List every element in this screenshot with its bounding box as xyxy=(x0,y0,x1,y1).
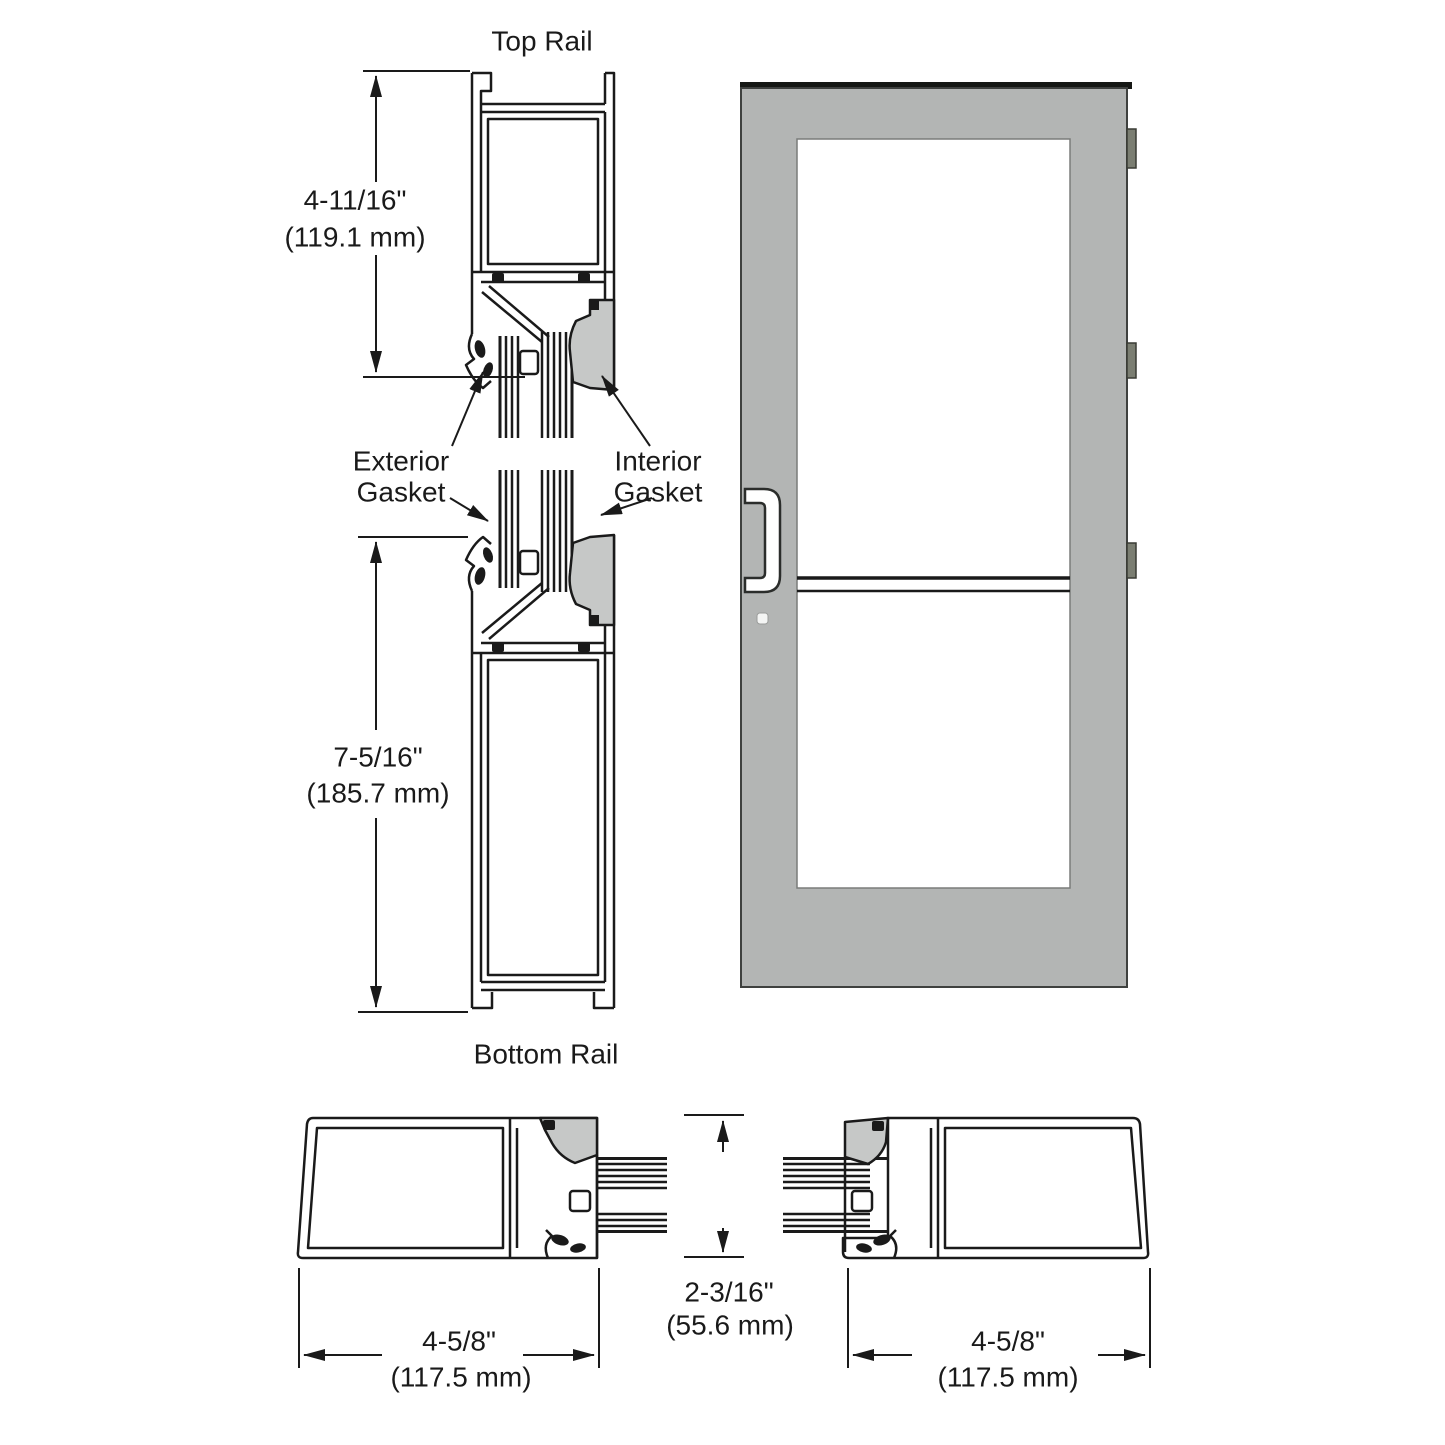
top-rail-section xyxy=(466,73,614,390)
exterior-gasket-label-line1: Exterior xyxy=(353,446,449,475)
dim-bottom-rail-metric: (185.7 mm) xyxy=(306,778,449,807)
dim-top-rail-imperial: 4-11/16" xyxy=(304,185,407,214)
diagram-canvas: Top Rail 4-11/16" (119.1 mm) Exterior Ga… xyxy=(0,0,1445,1445)
top-rail-label: Top Rail xyxy=(491,26,592,55)
dim-glazing-depth xyxy=(684,1115,744,1257)
door-elevation xyxy=(740,82,1136,987)
dim-bottom-rail-imperial: 7-5/16" xyxy=(333,742,422,771)
diagram-linework xyxy=(0,0,1445,1445)
bottom-rail-label: Bottom Rail xyxy=(474,1039,619,1068)
door-lock-cylinder xyxy=(757,613,768,624)
dim-top-rail-metric: (119.1 mm) xyxy=(284,222,425,251)
dim-lock-stile-imperial: 4-5/8" xyxy=(422,1326,496,1355)
bottom-rail-section xyxy=(466,535,614,1008)
dim-hinge-stile-imperial: 4-5/8" xyxy=(971,1326,1045,1355)
hinge-bottom xyxy=(1127,543,1136,578)
exterior-gasket-label-line2: Gasket xyxy=(357,477,446,506)
lock-stile-section xyxy=(298,1118,667,1258)
hinge-middle xyxy=(1127,343,1136,378)
hinge-top xyxy=(1127,129,1136,168)
dim-glazing-depth-metric: (55.6 mm) xyxy=(666,1310,794,1339)
dim-lock-stile-metric: (117.5 mm) xyxy=(390,1362,531,1391)
dim-bottom-rail xyxy=(358,537,468,1012)
interior-gasket-label-line1: Interior xyxy=(614,446,701,475)
door-hinges xyxy=(1127,129,1136,578)
door-glass xyxy=(797,139,1070,888)
dim-glazing-depth-imperial: 2-3/16" xyxy=(684,1277,773,1306)
dim-hinge-stile-metric: (117.5 mm) xyxy=(937,1362,1078,1391)
interior-gasket-label-line2: Gasket xyxy=(614,477,703,506)
hinge-stile-section xyxy=(783,1118,1148,1258)
